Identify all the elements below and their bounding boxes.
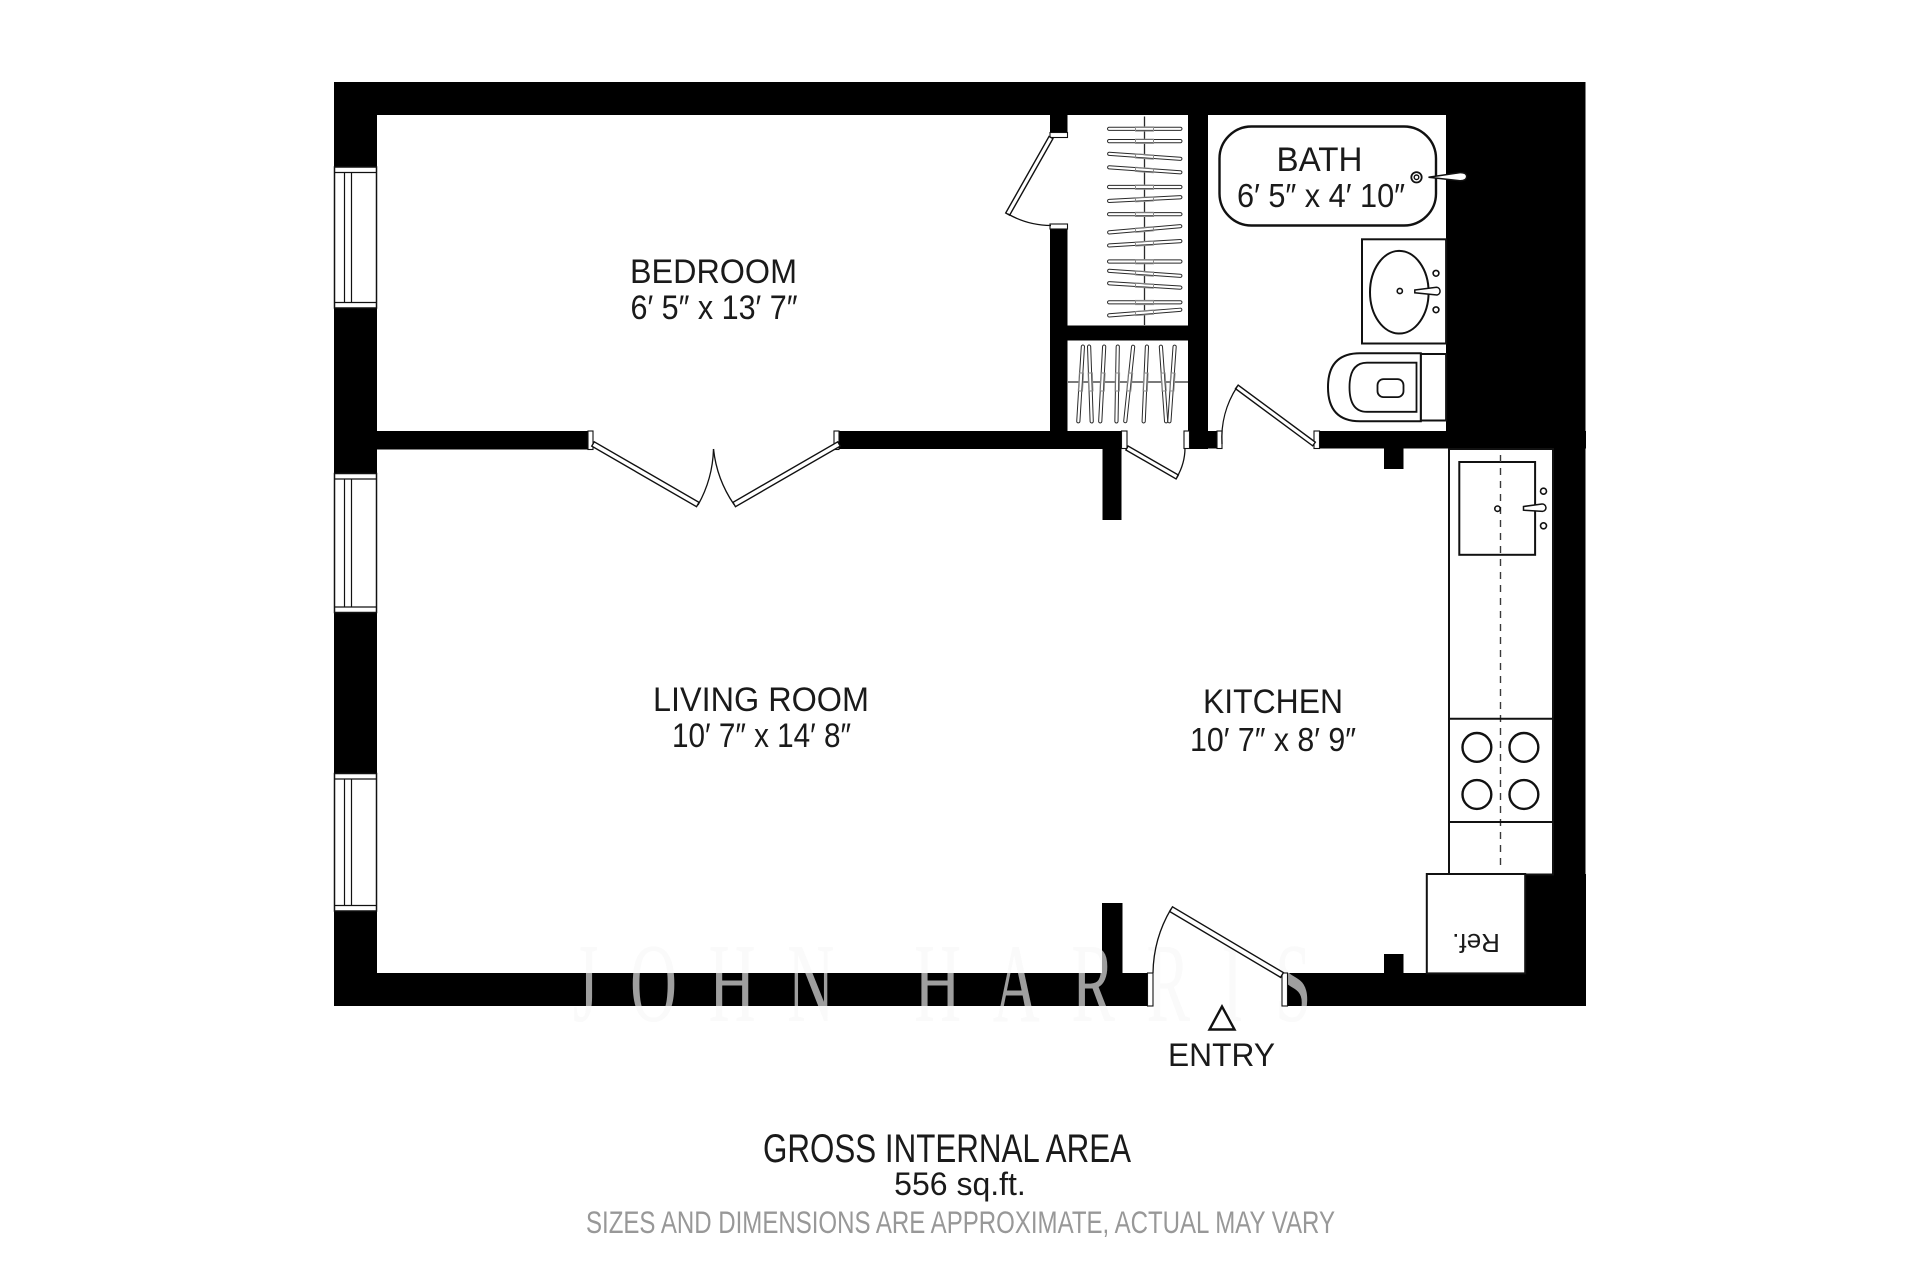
svg-text:BEDROOM: BEDROOM	[630, 253, 797, 291]
svg-text:SIZES AND DIMENSIONS ARE APPRO: SIZES AND DIMENSIONS ARE APPROXIMATE, AC…	[586, 1204, 1335, 1240]
svg-text:6′ 5″ x 4′ 10″: 6′ 5″ x 4′ 10″	[1237, 177, 1405, 214]
svg-text:KITCHEN: KITCHEN	[1203, 683, 1343, 721]
svg-text:556 sq.ft.: 556 sq.ft.	[894, 1166, 1026, 1202]
svg-text:6′ 5″ x 13′ 7″: 6′ 5″ x 13′ 7″	[631, 289, 798, 327]
svg-text:Ref.: Ref.	[1452, 928, 1500, 958]
svg-text:GROSS INTERNAL AREA: GROSS INTERNAL AREA	[763, 1127, 1131, 1171]
svg-text:10′ 7″ x 8′ 9″: 10′ 7″ x 8′ 9″	[1190, 721, 1356, 758]
svg-text:BATH: BATH	[1277, 141, 1363, 179]
svg-text:LIVING ROOM: LIVING ROOM	[653, 681, 869, 719]
svg-text:ENTRY: ENTRY	[1168, 1037, 1275, 1073]
svg-text:10′ 7″ x 14′ 8″: 10′ 7″ x 14′ 8″	[672, 717, 851, 755]
